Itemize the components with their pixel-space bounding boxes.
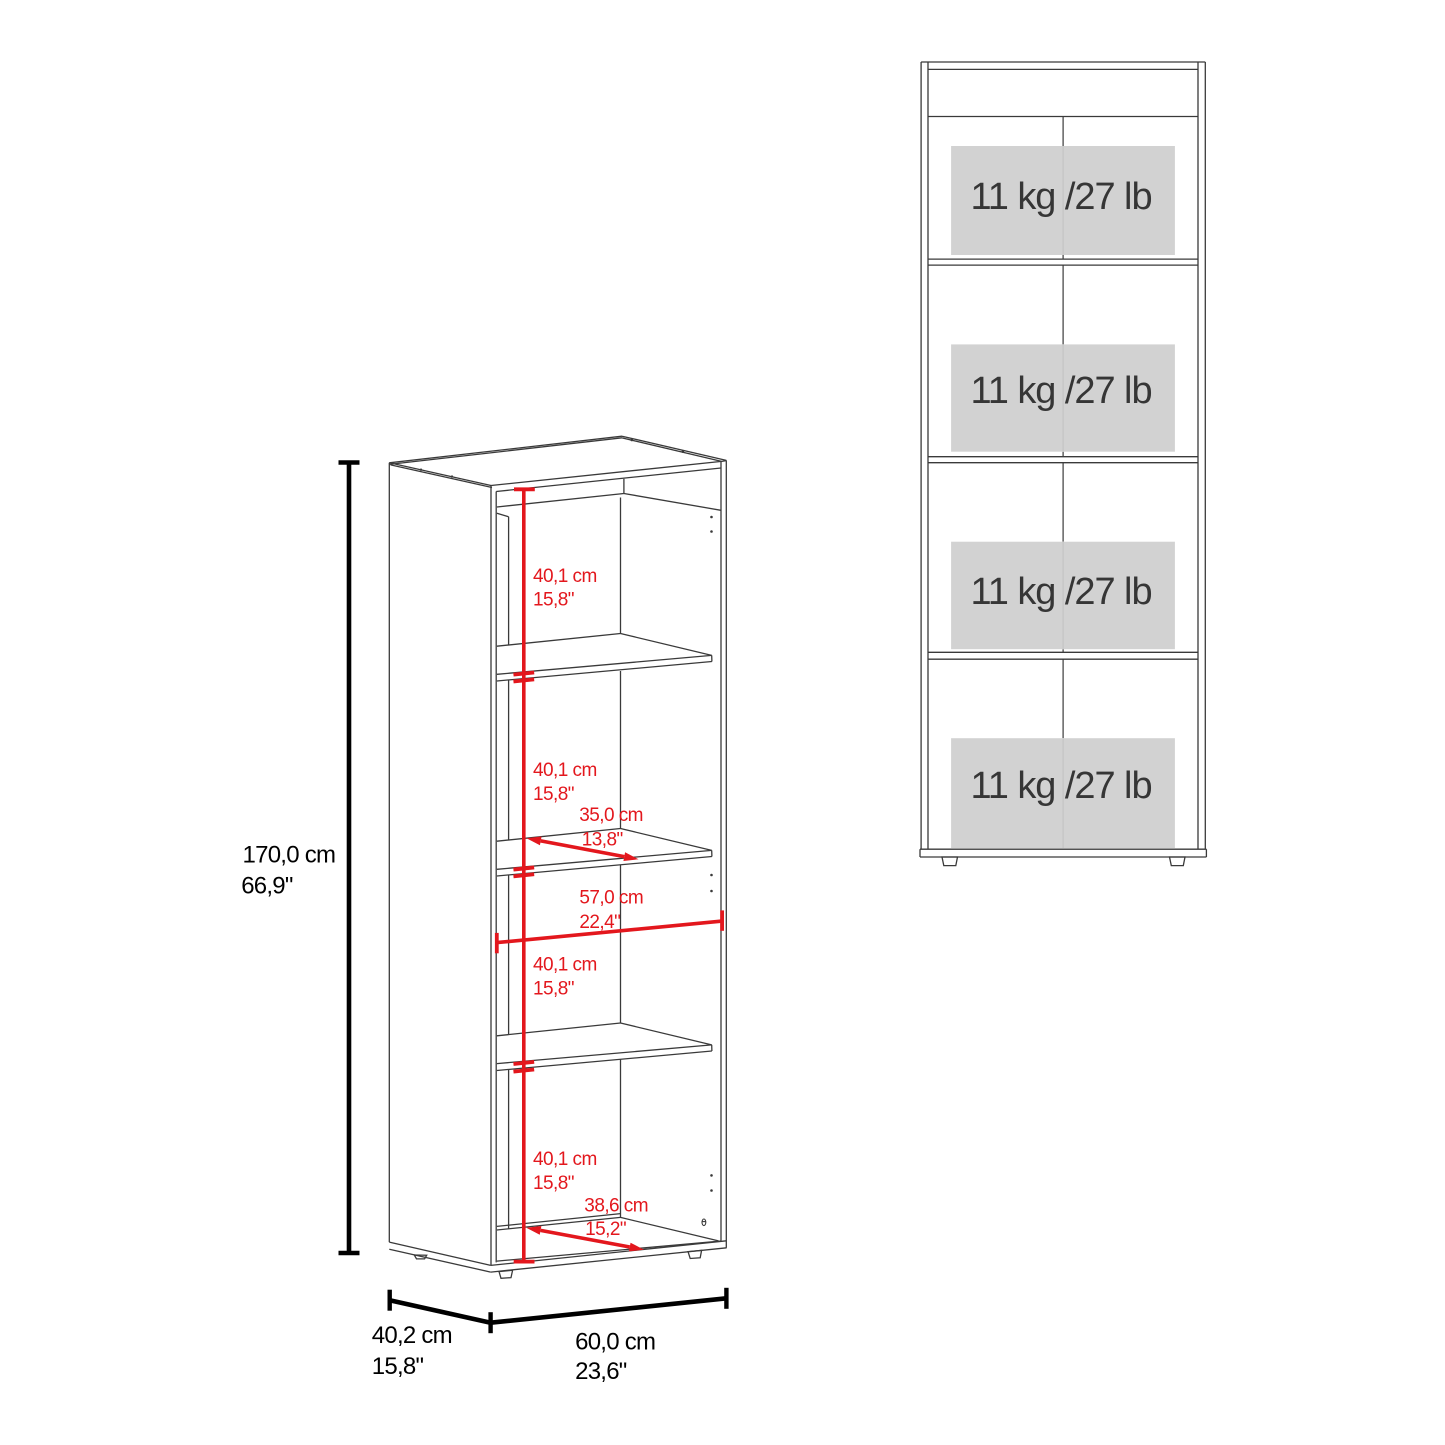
svg-text:15,8": 15,8": [372, 1353, 424, 1380]
svg-text:170,0 cm: 170,0 cm: [243, 842, 336, 869]
svg-text:23,6": 23,6": [575, 1358, 627, 1385]
svg-text:15,8": 15,8": [533, 590, 574, 611]
svg-text:11 kg /27 lb: 11 kg /27 lb: [970, 571, 1151, 613]
svg-text:60,0 cm: 60,0 cm: [575, 1329, 655, 1356]
svg-text:40,1 cm: 40,1 cm: [533, 1149, 597, 1170]
svg-text:15,8": 15,8": [533, 979, 574, 1000]
svg-text:40,1 cm: 40,1 cm: [533, 566, 597, 587]
svg-text:40,2 cm: 40,2 cm: [372, 1322, 452, 1349]
svg-text:13,8": 13,8": [582, 829, 623, 850]
svg-text:15,8": 15,8": [533, 784, 574, 805]
svg-text:40,1 cm: 40,1 cm: [533, 760, 597, 781]
svg-text:22,4": 22,4": [579, 912, 620, 933]
svg-text:35,0 cm: 35,0 cm: [579, 805, 643, 826]
svg-text:11 kg /27 lb: 11 kg /27 lb: [970, 765, 1151, 807]
svg-text:15,8": 15,8": [533, 1173, 574, 1194]
svg-text:66,9": 66,9": [241, 873, 293, 900]
svg-text:11 kg /27 lb: 11 kg /27 lb: [970, 176, 1151, 218]
svg-text:40,1 cm: 40,1 cm: [533, 955, 597, 976]
svg-text:11 kg /27 lb: 11 kg /27 lb: [970, 370, 1151, 412]
svg-text:57,0 cm: 57,0 cm: [579, 888, 643, 909]
svg-text:15,2": 15,2": [585, 1219, 626, 1240]
svg-text:38,6 cm: 38,6 cm: [584, 1196, 648, 1217]
